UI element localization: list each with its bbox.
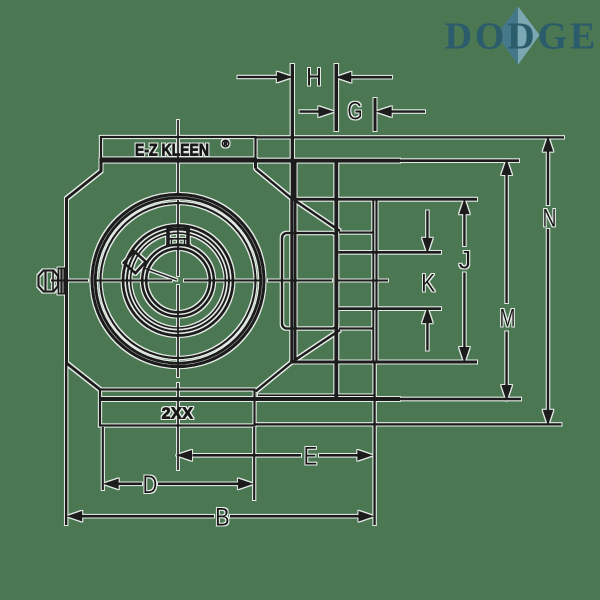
svg-text:B: B bbox=[215, 503, 230, 531]
svg-text:G: G bbox=[348, 98, 363, 126]
svg-text:M: M bbox=[500, 305, 516, 333]
svg-text:J: J bbox=[459, 247, 472, 275]
svg-text:®: ® bbox=[222, 139, 230, 150]
svg-text:E: E bbox=[304, 442, 318, 470]
svg-text:H: H bbox=[306, 64, 322, 92]
svg-text:DODGE: DODGE bbox=[445, 16, 599, 58]
svg-text:D: D bbox=[143, 471, 158, 499]
svg-text:2XX: 2XX bbox=[162, 406, 194, 423]
svg-text:K: K bbox=[421, 270, 435, 298]
svg-text:N: N bbox=[543, 205, 557, 233]
svg-text:E-Z KLEEN: E-Z KLEEN bbox=[135, 141, 209, 160]
